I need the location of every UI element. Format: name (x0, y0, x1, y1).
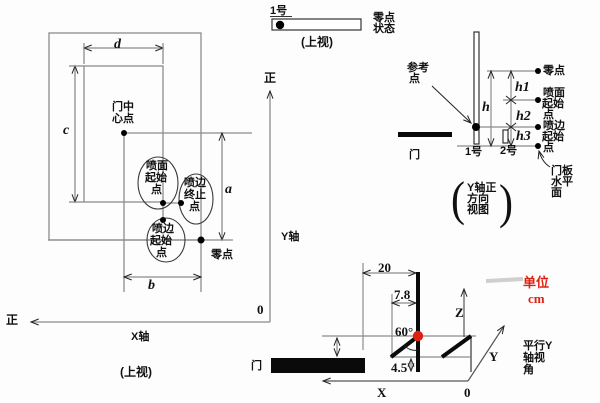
technical-diagram-spray-door: d c a b 门中 心点 喷面 起始 点 喷边 终止 点 喷边 起始 点 零点… (0, 0, 600, 403)
side-caption-paren-close: ) (499, 182, 513, 223)
gun2-label-side: 2号 (500, 146, 517, 157)
view-angle-label-1: 平行Y (523, 341, 552, 352)
axis-y-line (468, 326, 504, 381)
y-axis-label: Y轴 (281, 232, 299, 243)
unit-value: cm (528, 292, 545, 305)
gun-top-view-caption: (上视) (301, 36, 333, 48)
x-axis-label: X轴 (131, 332, 149, 343)
smudge-mark (486, 279, 523, 281)
dim-h2-label: h2 (516, 110, 531, 124)
dim-h1-label: h1 (515, 81, 530, 95)
view-angle-label-2: 轴视 (523, 353, 545, 364)
spray-edge-start-label-1: 喷边 (152, 224, 174, 235)
axis-y-label: Y (489, 350, 498, 363)
door-bar-side (398, 132, 452, 137)
gun-diagonal-2 (442, 336, 471, 357)
door-center-label-1: 门中 (112, 102, 134, 113)
spray-edge-start-label-3: 点 (156, 248, 167, 259)
reference-point-dot (472, 123, 480, 131)
dim-c-label: c (63, 124, 69, 138)
origin-label-3d: 0 (464, 386, 471, 399)
door-outer-rect (49, 33, 201, 240)
spray-face-start-label-3: 点 (151, 185, 162, 196)
axis-z-label: Z (455, 306, 464, 319)
spray-point-red-dot (413, 331, 423, 341)
gun-diagonal-1 (391, 337, 417, 357)
perspective-parts (271, 272, 471, 373)
gun1-label-side: 1号 (465, 147, 482, 158)
positive-up-label: 正 (264, 72, 276, 84)
dim-7-8-label: 7.8 (394, 288, 410, 301)
dim-4-5-label: 4.5 (391, 361, 407, 374)
gun1-label-top: 1号 (270, 6, 287, 17)
door-label-side: 门 (409, 150, 420, 161)
origin-label-left: 0 (257, 303, 264, 316)
zero-state-label-2: 状态 (373, 24, 395, 35)
zero-point-label-side: 零点 (543, 66, 565, 77)
spray-face-start-dot (160, 200, 166, 206)
dim-b-label: b (148, 279, 155, 293)
zero-point-dot (198, 237, 205, 244)
door-bar-3d (271, 358, 365, 373)
dim-d-label: d (114, 38, 121, 52)
spray-face-start-label-2: 起始 (145, 173, 167, 184)
positive-left-label: 正 (6, 314, 18, 326)
door-label-3d: 门 (251, 361, 262, 372)
spray-edge-end-label-3: 点 (189, 202, 200, 213)
spray-edge-end-label-2: 终止 (184, 190, 206, 201)
side-caption-paren-open: ( (451, 179, 465, 220)
spray-edge-end-label-1: 喷边 (184, 178, 206, 189)
spray-edge-start-label-2: 起始 (150, 236, 172, 247)
gun1-dot (276, 21, 284, 29)
zero-point-label-left: 零点 (211, 250, 233, 261)
spray-face-start-label-1: 喷面 (146, 161, 168, 172)
dim-h-label: h (482, 101, 490, 115)
dim-a-label: a (225, 183, 232, 197)
gun-bar (272, 19, 361, 30)
unit-label: 单位 (523, 276, 549, 289)
left-view-caption: (上视) (120, 366, 152, 378)
door-plane-label-3: 面 (551, 188, 562, 199)
door-center-point (121, 130, 127, 136)
dim-20-label: 20 (378, 261, 391, 274)
gun2-rod (503, 130, 508, 143)
axis-x-label: X (377, 386, 386, 399)
view-angle-label-3: 角 (523, 365, 534, 376)
gun-top-view-linework (270, 17, 361, 31)
side-caption-line-3: 视图 (467, 205, 489, 216)
dim-h3-label: h3 (516, 130, 531, 144)
door-center-label-2: 心点 (112, 114, 134, 125)
angle-60-label: 60° (395, 325, 413, 338)
side-spray-edge-label-3: 点 (543, 143, 554, 154)
reference-point-label-2: 点 (409, 74, 420, 85)
reference-point-arrow (432, 86, 471, 123)
